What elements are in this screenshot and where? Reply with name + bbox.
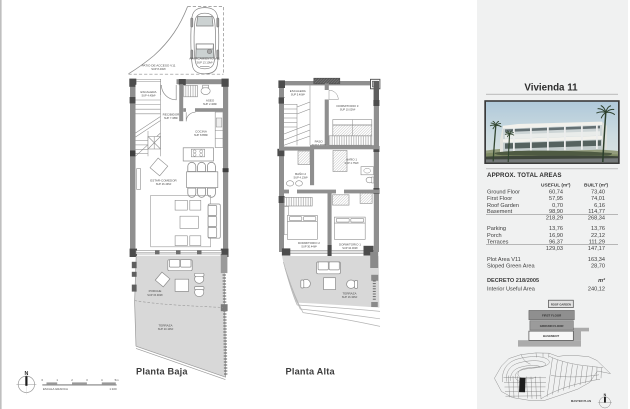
svg-text:Ground Floor: Ground Floor [487,190,520,196]
svg-text:GROUND FLOOR: GROUND FLOOR [540,324,565,328]
svg-text:147,17: 147,17 [588,246,605,252]
svg-text:Porch: Porch [487,233,502,239]
svg-text:DECRETO 218/2005: DECRETO 218/2005 [487,278,539,284]
svg-text:BUILT (m²): BUILT (m²) [584,183,609,189]
svg-text:Interior Useful Area: Interior Useful Area [487,286,536,292]
svg-text:74,01: 74,01 [591,196,605,202]
svg-text:DORMITORIO 1: DORMITORIO 1 [339,242,361,246]
svg-text:ASEO: ASEO [206,99,215,103]
svg-text:SUP 10.02M²: SUP 10.02M² [340,108,356,112]
svg-text:73,40: 73,40 [591,190,605,196]
svg-text:163,34: 163,34 [588,257,605,263]
svg-text:5m: 5m [115,378,120,382]
svg-text:1:100: 1:100 [109,387,117,391]
svg-text:FIRST FLOOR: FIRST FLOOR [542,314,562,318]
svg-text:USEFUL (m²): USEFUL (m²) [541,183,571,189]
svg-text:SUP 4.13M²: SUP 4.13M² [294,176,308,180]
svg-text:SUP 4.45M²: SUP 4.45M² [141,94,155,98]
svg-text:Planta Baja: Planta Baja [136,366,188,376]
svg-text:129,03: 129,03 [546,246,563,252]
svg-text:13,76: 13,76 [591,226,605,232]
svg-text:22,12: 22,12 [591,233,605,239]
svg-text:6,16: 6,16 [594,203,605,209]
svg-text:SUP 8.40M²: SUP 8.40M² [151,67,166,71]
svg-text:Plot Area V11: Plot Area V11 [487,257,521,263]
svg-text:PASO: PASO [315,140,324,144]
svg-text:RECIBIDOR: RECIBIDOR [163,112,181,116]
svg-text:TERRAZA: TERRAZA [342,292,356,296]
svg-text:57,95: 57,95 [549,196,563,202]
svg-text:SUP 8.85M²: SUP 8.85M² [194,133,208,137]
svg-text:16,90: 16,90 [549,233,563,239]
svg-text:m²: m² [598,277,605,284]
svg-text:13,76: 13,76 [549,226,563,232]
svg-text:APARCAMIENTO V11: APARCAMIENTO V11 [189,57,220,61]
svg-text:COCINA: COCINA [195,130,207,134]
svg-text:ESTAR-COMEDOR: ESTAR-COMEDOR [150,179,177,183]
svg-text:DORMITORIO 2: DORMITORIO 2 [298,241,320,245]
svg-text:SUP 2.40M²: SUP 2.40M² [203,102,217,106]
svg-text:0,70: 0,70 [552,203,563,209]
svg-text:BASEMENT: BASEMENT [543,334,559,338]
svg-text:Sloped Green Area: Sloped Green Area [487,263,535,269]
svg-text:TERRAZA: TERRAZA [158,324,172,328]
svg-text:SUP 7.38M²: SUP 7.38M² [164,116,178,120]
svg-text:ESCALERA: ESCALERA [140,90,156,94]
svg-text:ESCALA GRAFICA: ESCALA GRAFICA [43,387,68,391]
svg-text:ROOF GARDEN: ROOF GARDEN [551,302,571,306]
svg-text:SUP 30.44M²: SUP 30.44M² [301,245,317,249]
svg-text:28,70: 28,70 [591,263,605,269]
svg-text:SUP 15.90M²: SUP 15.90M² [147,293,163,297]
svg-text:268,34: 268,34 [588,216,605,222]
svg-text:SUP 20.10M²: SUP 20.10M² [158,327,174,331]
svg-text:SUP 34.00M²: SUP 34.00M² [342,246,358,250]
svg-text:60,74: 60,74 [549,190,563,196]
svg-text:DORMITORIO 3: DORMITORIO 3 [337,104,359,108]
svg-text:PATIO DE ACCESO V11: PATIO DE ACCESO V11 [142,63,176,67]
svg-text:MASTER PLAN: MASTER PLAN [571,399,591,403]
svg-text:SUP 16.30M²: SUP 16.30M² [342,295,358,299]
svg-text:First Floor: First Floor [487,196,512,202]
svg-text:Vivienda 11: Vivienda 11 [524,83,578,94]
svg-text:N: N [604,393,607,397]
svg-text:APPROX. TOTAL AREAS: APPROX. TOTAL AREAS [487,172,562,179]
svg-text:218,29: 218,29 [546,216,563,222]
svg-text:SUP 26.43M²: SUP 26.43M² [156,182,172,186]
svg-text:ESCALERA: ESCALERA [290,89,306,93]
svg-text:240,12: 240,12 [588,286,605,292]
svg-text:N: N [24,371,28,377]
svg-text:Planta Alta: Planta Alta [286,366,336,376]
svg-text:BAÑO 1: BAÑO 1 [346,156,357,161]
svg-text:SUP 13.10M²: SUP 13.10M² [196,60,212,64]
svg-text:SUP 5.40M²: SUP 5.40M² [291,93,305,97]
svg-text:Parking: Parking [487,226,506,232]
svg-text:PORCHE: PORCHE [149,289,162,293]
svg-text:BAÑO 2: BAÑO 2 [295,171,306,176]
svg-text:Roof Garden: Roof Garden [487,203,519,209]
